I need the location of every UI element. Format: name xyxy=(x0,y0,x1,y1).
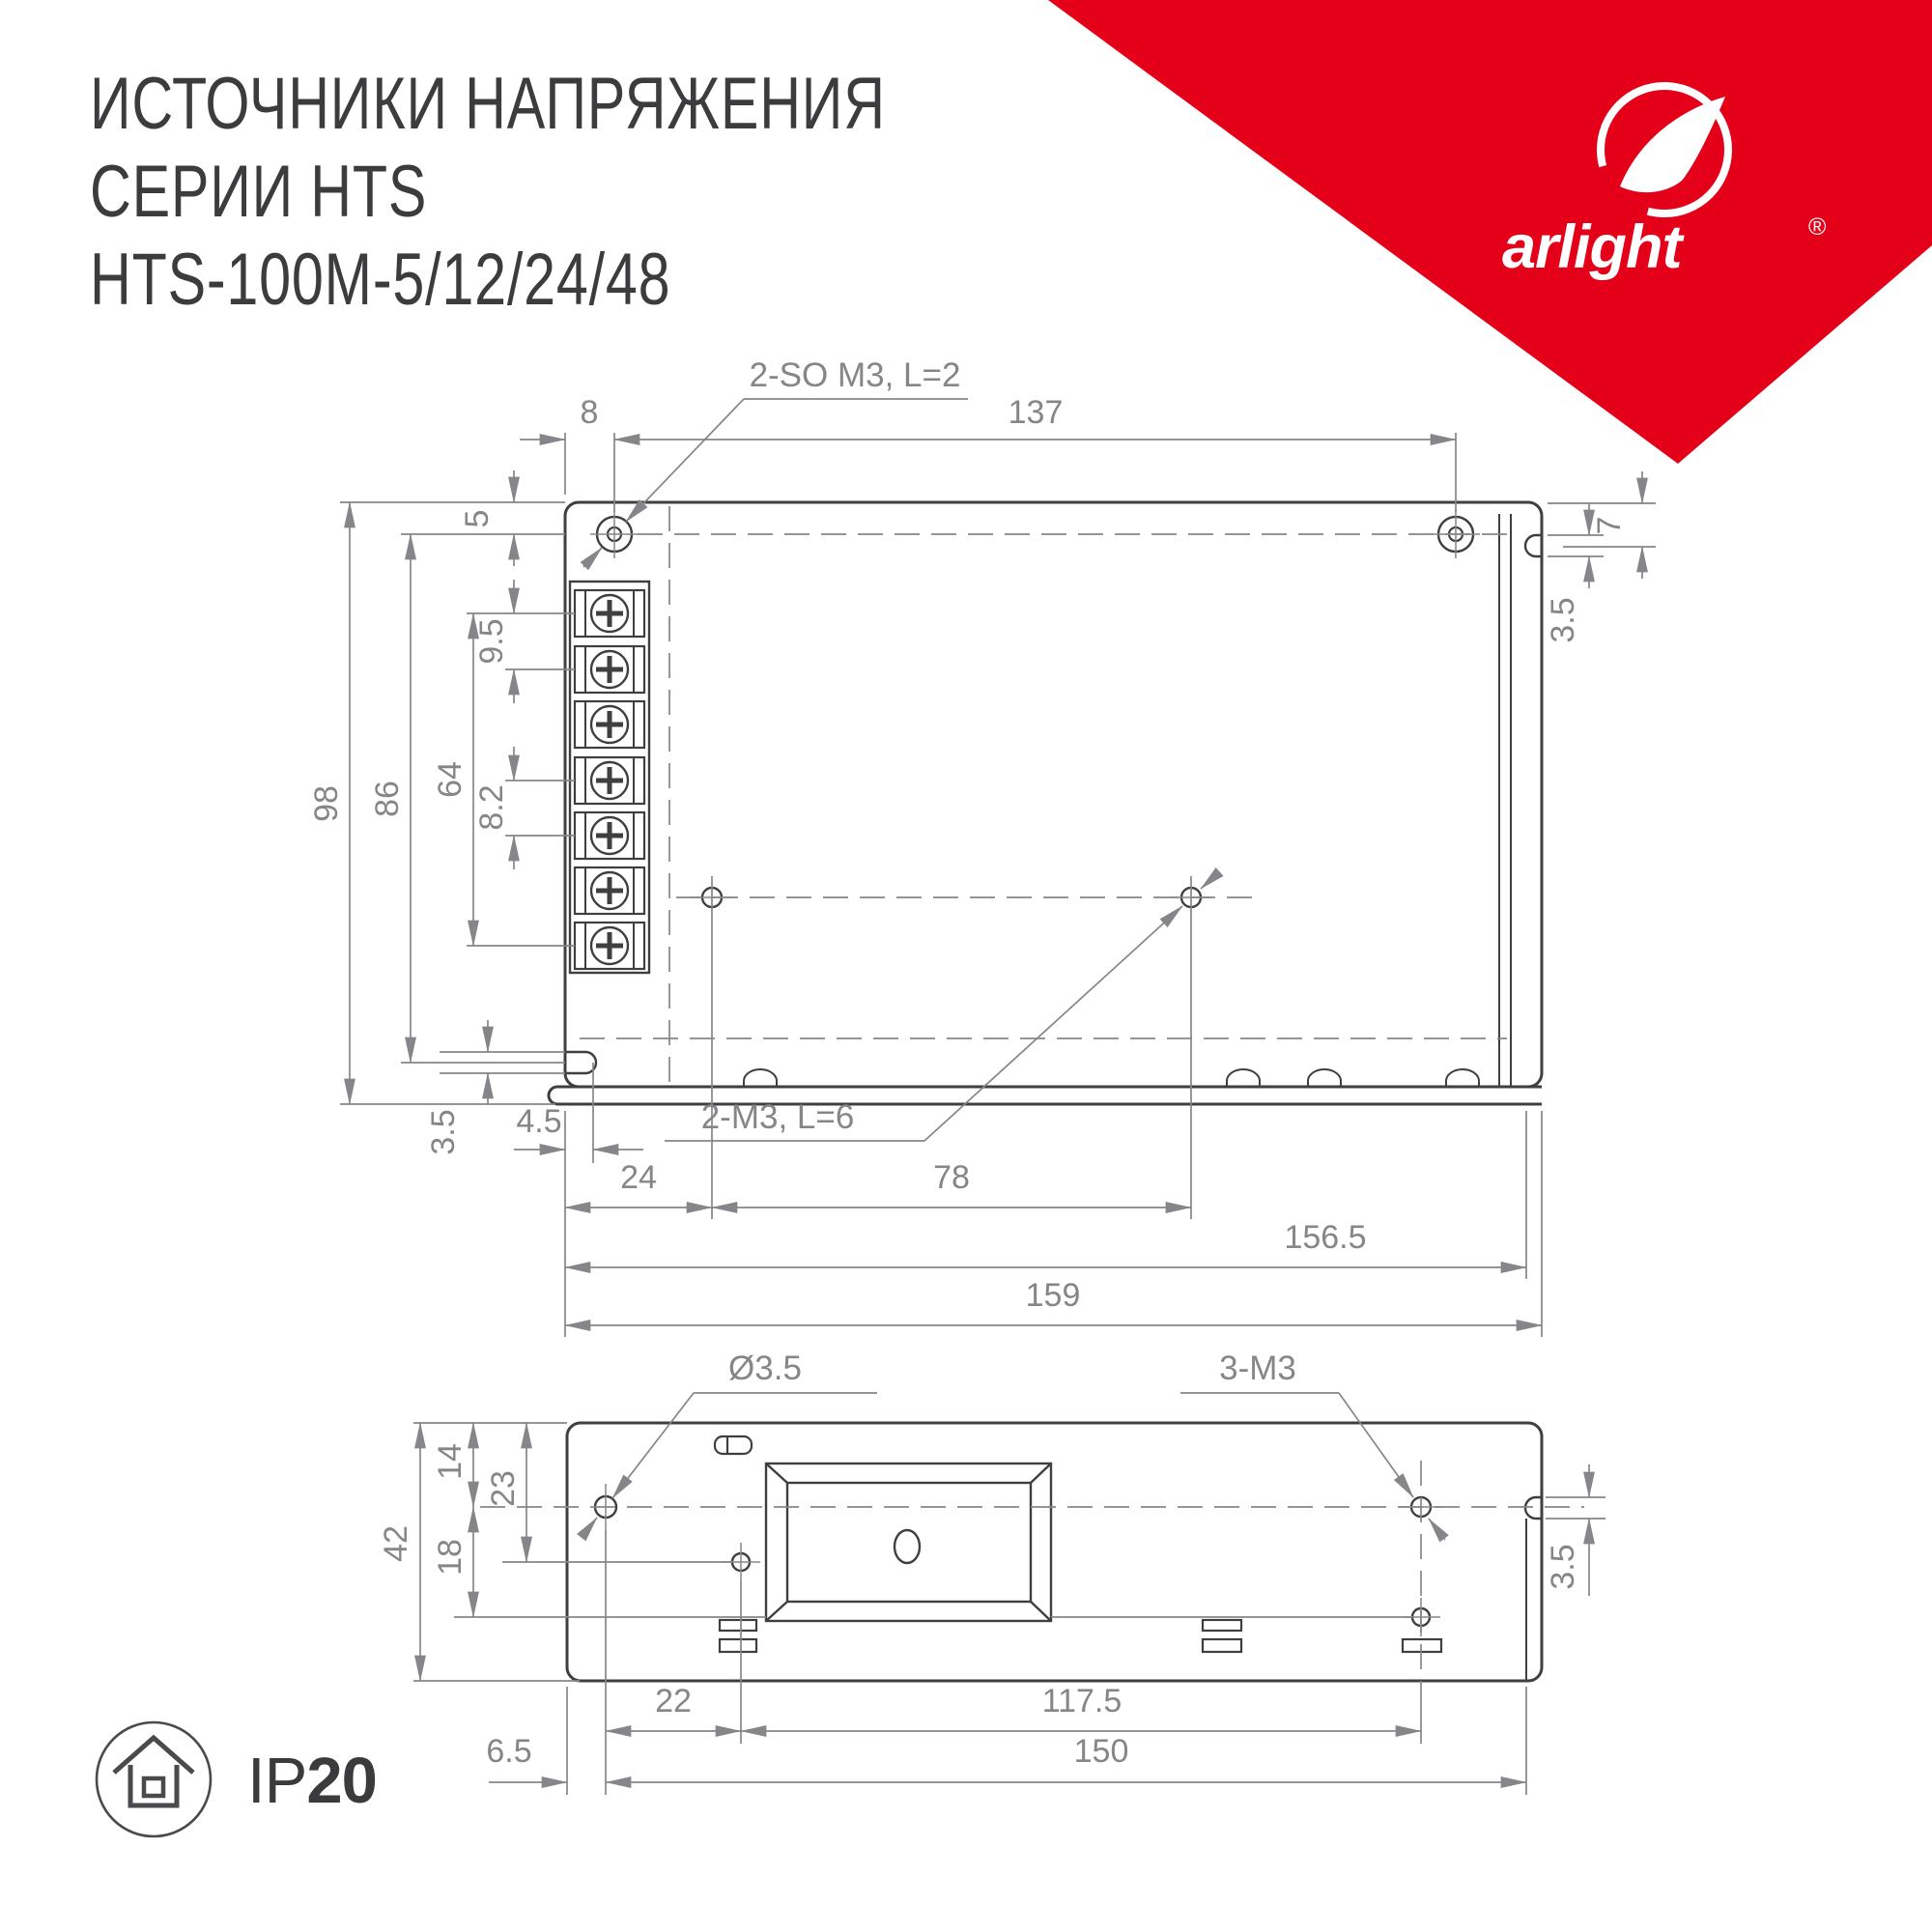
vent-slots xyxy=(715,1436,1441,1652)
top-view-mounting-holes xyxy=(590,510,1480,907)
terminal-block xyxy=(570,582,649,973)
bottom-view-centerlines xyxy=(480,1461,1584,1681)
dim-label-22: 22 xyxy=(655,1683,692,1719)
bottom-edge-tabs xyxy=(744,1069,1479,1087)
dim-label-78: 78 xyxy=(933,1159,970,1196)
note-2m3: 2-M3, L=6 xyxy=(701,1098,855,1136)
top-view-outline xyxy=(549,502,1542,1104)
bottom-view: Ø3.5 3-M3 42 14 18 23 3.5 22 117.5 6.5 1… xyxy=(378,1350,1605,1795)
left-edge-notch xyxy=(565,1052,596,1073)
ip-rating-label: IP20 xyxy=(247,1745,377,1817)
center-hole xyxy=(895,1530,920,1563)
dim-label-23: 23 xyxy=(485,1470,522,1507)
dim-label-14: 14 xyxy=(432,1443,469,1480)
dim-label-86: 86 xyxy=(369,781,406,817)
dim-label-8_2: 8.2 xyxy=(473,784,510,830)
datasheet-page: ИСТОЧНИКИ НАПРЯЖЕНИЯ СЕРИИ HTS HTS-100M-… xyxy=(0,0,1932,1932)
dim-label-64: 64 xyxy=(432,761,469,798)
dim-label-3_5-right: 3.5 xyxy=(1545,597,1581,642)
bottom-view-outline xyxy=(567,1423,1542,1681)
dim-label-6_5: 6.5 xyxy=(486,1733,531,1770)
bottom-view-dimensions xyxy=(413,1393,1605,1795)
dim-label-150: 150 xyxy=(1074,1733,1129,1770)
dim-label-9_5: 9.5 xyxy=(473,618,510,664)
dim-label-8: 8 xyxy=(581,394,599,431)
ip-rating-badge: IP20 xyxy=(97,1722,377,1836)
dim-label-5: 5 xyxy=(459,510,496,528)
right-edge-notch xyxy=(1525,535,1542,556)
dim-label-117_5: 117.5 xyxy=(1042,1683,1122,1719)
dim-label-3_5-bottom: 3.5 xyxy=(1545,1544,1581,1589)
dim-label-18: 18 xyxy=(432,1539,469,1576)
dim-label-156_5: 156.5 xyxy=(1284,1219,1366,1256)
top-view: 2-SO M3, L=2 2-M3, L=6 8 137 5 9.5 64 8.… xyxy=(308,356,1656,1337)
dim-label-159: 159 xyxy=(1026,1277,1081,1314)
dim-label-4_5: 4.5 xyxy=(516,1103,561,1140)
note-dia-3_5: Ø3.5 xyxy=(728,1350,802,1387)
base-plate xyxy=(549,1087,1542,1104)
dim-label-3_5-left: 3.5 xyxy=(425,1109,462,1154)
note-3m3: 3-M3 xyxy=(1219,1350,1296,1387)
dim-label-137: 137 xyxy=(1009,394,1064,431)
bottom-view-labels: Ø3.5 3-M3 42 14 18 23 3.5 22 117.5 6.5 1… xyxy=(378,1350,1581,1770)
indoor-house-icon xyxy=(114,1738,193,1805)
dim-label-7: 7 xyxy=(1591,517,1628,535)
terminal-screws xyxy=(575,590,644,969)
dim-label-42: 42 xyxy=(378,1525,414,1562)
technical-drawing: 2-SO M3, L=2 2-M3, L=6 8 137 5 9.5 64 8.… xyxy=(0,0,1932,1932)
bottom-view-right-notch xyxy=(1525,1497,1542,1519)
top-view-centerlines xyxy=(580,506,1517,1084)
dim-label-98: 98 xyxy=(308,785,345,822)
dim-label-24: 24 xyxy=(620,1159,657,1196)
note-so-m3: 2-SO M3, L=2 xyxy=(750,356,961,394)
embossed-label-area xyxy=(766,1463,1051,1621)
